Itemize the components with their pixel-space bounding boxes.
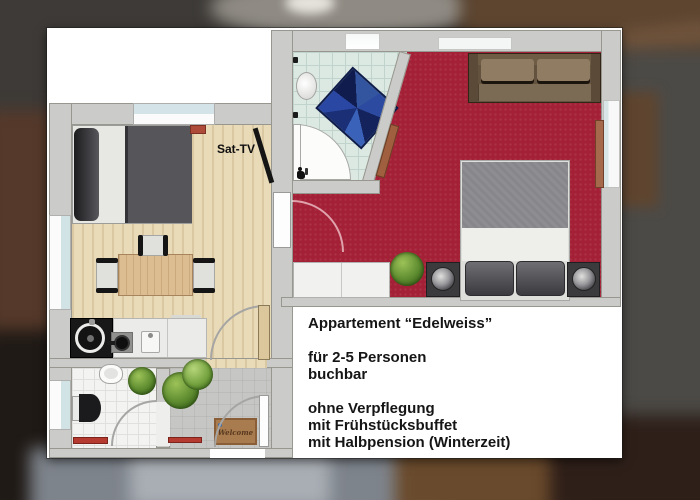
sofa-armrest: [469, 54, 478, 102]
door-leaf-redroom: [273, 192, 291, 248]
chair-armrest: [163, 235, 168, 256]
window-left-wc: [49, 380, 71, 430]
board-option: ohne Verpflegung: [308, 400, 435, 417]
window-left-family: [49, 215, 71, 310]
window-top-redroom: [438, 37, 512, 50]
chair-armrest: [96, 258, 118, 263]
kitchen-sink-drain: [87, 335, 94, 342]
potted-plant: [128, 367, 156, 395]
radiator-redroom: [595, 120, 604, 188]
bedside-lamp: [431, 267, 455, 291]
towel-hook-icon: [293, 112, 298, 118]
shower-icon-body: [297, 171, 305, 179]
wc-washbasin-bowl: [104, 368, 118, 379]
potted-plant: [182, 359, 213, 390]
kitchen-faucet: [89, 319, 95, 325]
door-leaf-family: [258, 305, 270, 360]
pot-handle: [107, 341, 115, 345]
window-right-redroom: [603, 100, 620, 188]
radiator-wc: [73, 437, 108, 444]
wall-shelf: [190, 125, 206, 134]
bedside-lamp: [572, 267, 596, 291]
doorway-family-to-hall: [205, 359, 267, 368]
entrance-door-leaf: [259, 395, 269, 447]
capacity-line: buchbar: [308, 366, 367, 383]
cooking-pot: [114, 335, 130, 351]
dining-table: [118, 254, 193, 296]
shower-person-icon: [297, 167, 308, 179]
board-option: mit Halbpension (Winterzeit): [308, 434, 510, 451]
bed-pillow: [465, 261, 514, 296]
sofa-armrest: [591, 54, 600, 102]
chair-armrest: [193, 258, 215, 263]
sofa-seat: [478, 84, 591, 101]
single-bed-blanket: [125, 126, 192, 223]
towel-hook-icon: [293, 57, 298, 63]
chair-armrest: [96, 288, 118, 293]
sat-tv-label: Sat-TV: [217, 142, 271, 156]
small-sink-faucet: [148, 333, 153, 338]
single-bed-pillow: [74, 128, 99, 221]
sideboard-seam: [341, 263, 342, 297]
info-box: Appartement “Edelweiss” für 2-5 Personen…: [293, 307, 622, 458]
counter-seam: [167, 319, 168, 357]
window-top-bath: [345, 33, 380, 50]
capacity-line: für 2-5 Personen: [308, 349, 426, 366]
chair-armrest: [138, 235, 143, 256]
floorplan-card: Sat-TV: [47, 28, 622, 458]
bed-pillow: [516, 261, 565, 296]
doorway-entrance: [210, 449, 265, 458]
screenshot: Sat-TV: [0, 0, 700, 500]
potted-plant: [390, 252, 424, 286]
radiator-hall: [168, 437, 202, 443]
double-bed-blanket: [462, 162, 568, 228]
chair-armrest: [193, 288, 215, 293]
sofa-cushion: [537, 59, 590, 81]
apartment-title: Appartement “Edelweiss”: [308, 315, 492, 332]
double-bed-sheet: [462, 228, 568, 261]
sofa: [468, 53, 601, 103]
sofa-cushion: [481, 59, 534, 81]
window-top-family: [133, 103, 215, 125]
bathroom-sink: [296, 72, 317, 100]
bg-bottom-bed-light: [130, 452, 330, 500]
toilet: [79, 394, 101, 422]
sideboard: [293, 262, 390, 298]
board-option: mit Frühstücksbuffet: [308, 417, 457, 434]
shower-icon-jet: [305, 168, 308, 175]
wall-redroom-bottom: [281, 297, 621, 307]
